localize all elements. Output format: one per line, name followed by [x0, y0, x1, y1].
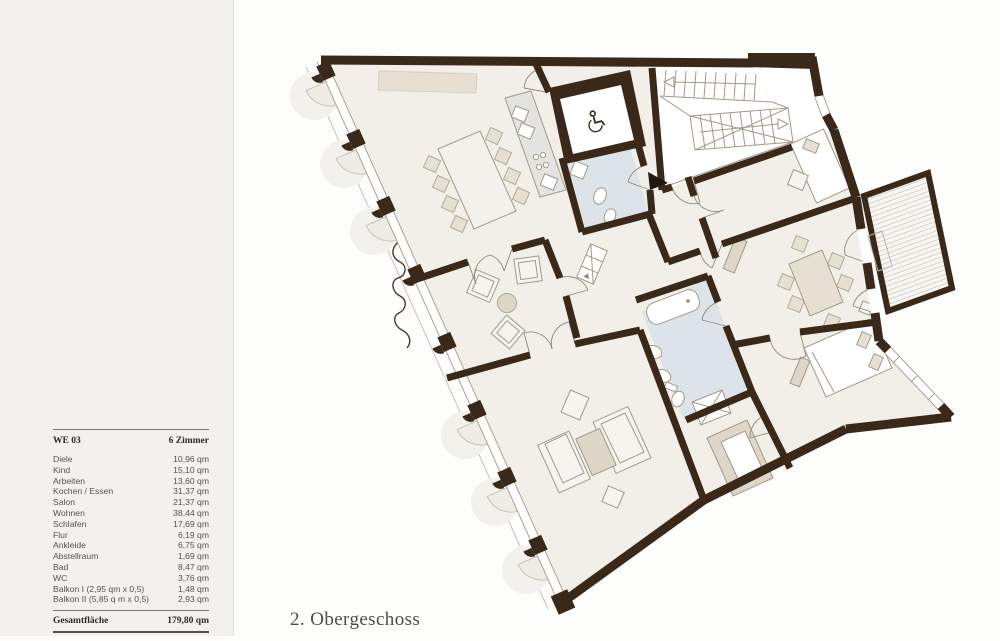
legend-header: WE 03 6 Zimmer — [53, 429, 209, 446]
table-row: Bad8,47 qm — [53, 562, 209, 573]
table-row: Arbeiten13,60 qm — [53, 476, 209, 487]
total-value: 179,80 qm — [167, 616, 209, 626]
table-row: Wohnen38,44 qm — [53, 508, 209, 519]
floor-caption: 2. Obergeschoss — [290, 609, 420, 631]
table-row: Flur6,19 qm — [53, 530, 209, 541]
legend-panel: WE 03 6 Zimmer Diele10,96 qm Kind15,10 q… — [53, 429, 209, 633]
table-row: Abstellraum1,69 qm — [53, 551, 209, 562]
table-row: Balkon I (2,95 qm x 0,5)1,48 qm — [53, 584, 209, 595]
table-row: Ankleide6,75 qm — [53, 540, 209, 551]
total-label: Gesamtfläche — [53, 616, 108, 626]
balcony-ii — [864, 173, 952, 311]
table-row: Salon21,37 qm — [53, 497, 209, 508]
table-row: WC3,76 qm — [53, 573, 209, 584]
kitchen-sideboard — [378, 71, 477, 93]
legend-rows: Diele10,96 qm Kind15,10 qm Arbeiten13,60… — [53, 454, 209, 605]
unit-label: WE 03 — [53, 436, 81, 446]
table-row: Schlafen17,69 qm — [53, 519, 209, 530]
table-row: Kind15,10 qm — [53, 465, 209, 476]
table-row: Diele10,96 qm — [53, 454, 209, 465]
rooms-count-label: 6 Zimmer — [169, 436, 209, 446]
legend-total-row: Gesamtfläche 179,80 qm — [53, 610, 209, 633]
table-row: Balkon II (5,85 q m x 0,5)2,93 qm — [53, 594, 209, 605]
table-row: Kochen / Essen31,37 qm — [53, 486, 209, 497]
